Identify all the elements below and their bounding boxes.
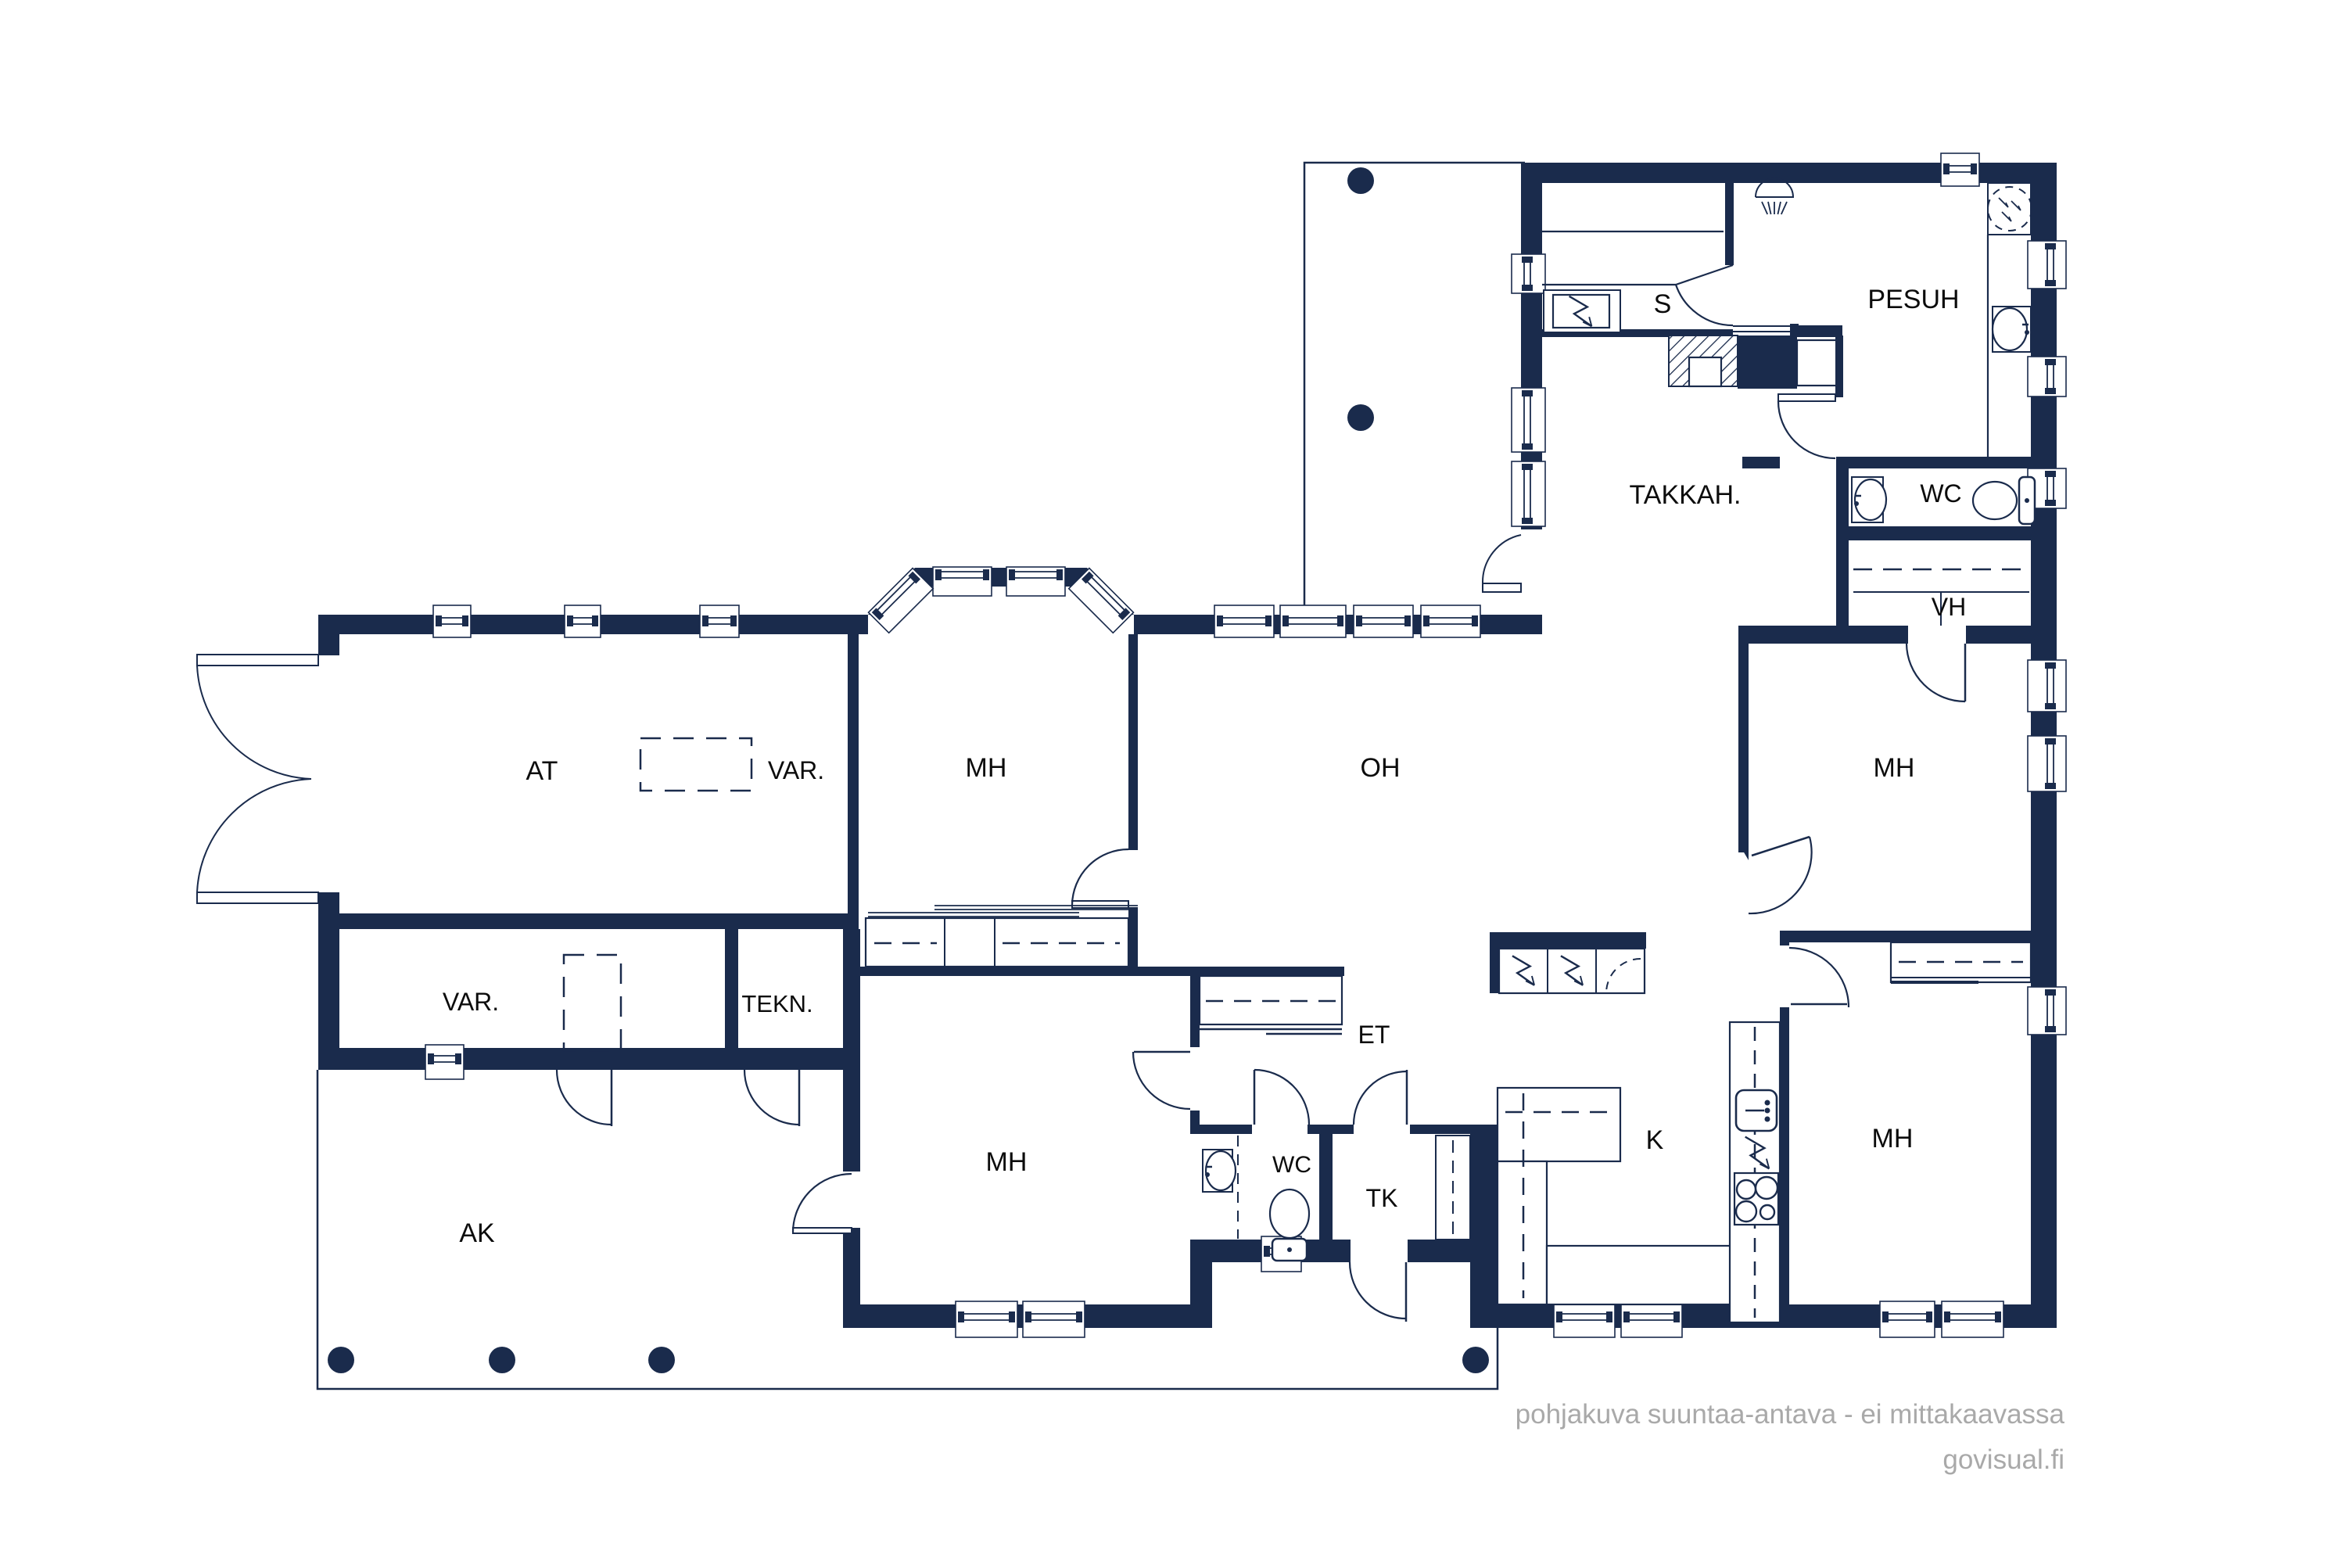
svg-text:AK: AK [459, 1218, 495, 1248]
svg-text:K: K [1646, 1125, 1664, 1155]
svg-text:WC: WC [1920, 479, 1961, 508]
svg-text:govisual.fi: govisual.fi [1942, 1444, 2064, 1475]
svg-text:VH: VH [1932, 593, 1966, 621]
svg-text:TAKKAH.: TAKKAH. [1630, 480, 1742, 510]
svg-text:OH: OH [1361, 753, 1401, 783]
svg-text:MH: MH [1872, 1124, 1914, 1154]
svg-text:TK: TK [1366, 1184, 1398, 1212]
svg-text:pohjakuva suuntaa-antava - ei: pohjakuva suuntaa-antava - ei mittakaava… [1516, 1399, 2065, 1430]
svg-text:S: S [1654, 289, 1672, 319]
svg-text:MH: MH [986, 1147, 1028, 1177]
svg-text:MH: MH [966, 753, 1007, 783]
svg-text:PESUH: PESUH [1867, 285, 1959, 314]
svg-text:WC: WC [1272, 1152, 1311, 1178]
svg-text:AT: AT [526, 756, 558, 786]
svg-text:ET: ET [1358, 1021, 1390, 1049]
svg-text:MH: MH [1874, 753, 1915, 783]
svg-text:VAR.: VAR. [768, 756, 824, 784]
svg-text:TEKN.: TEKN. [741, 990, 812, 1017]
svg-text:VAR.: VAR. [443, 988, 499, 1016]
